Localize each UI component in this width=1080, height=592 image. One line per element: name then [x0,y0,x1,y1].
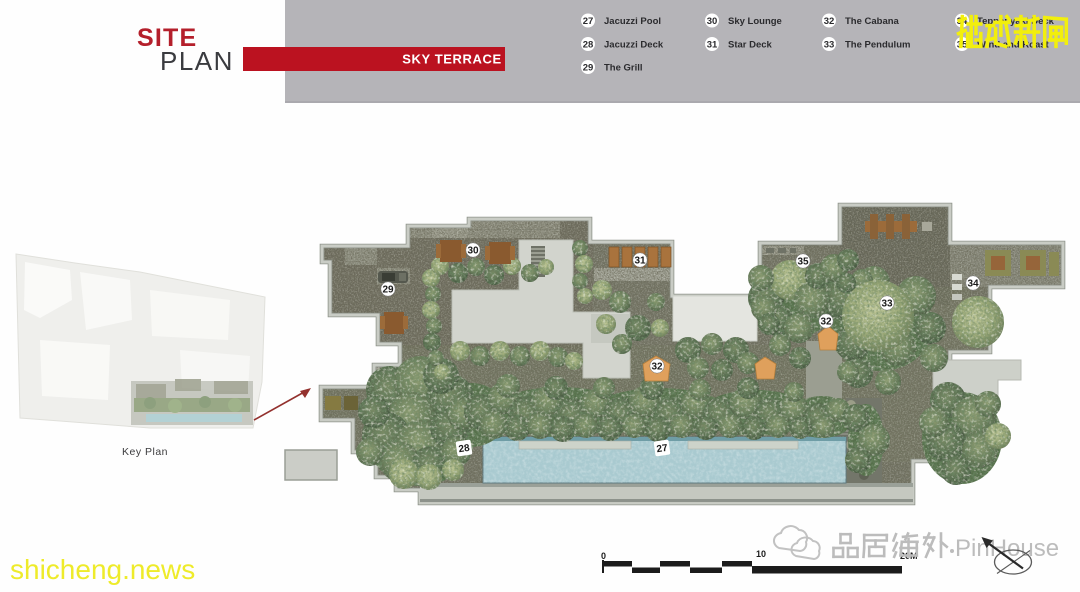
svg-text:The Pendulum: The Pendulum [845,40,910,51]
svg-text:29: 29 [583,63,594,74]
svg-text:30: 30 [707,16,718,27]
svg-text:The Cabana: The Cabana [845,16,900,27]
svg-text:Jacuzzi Deck: Jacuzzi Deck [604,40,664,51]
svg-text:31: 31 [707,40,718,51]
svg-text:29: 29 [382,285,394,296]
svg-text:PLAN: PLAN [160,46,234,76]
svg-text:33: 33 [824,40,835,51]
svg-text:10: 10 [756,549,766,559]
svg-text:28: 28 [458,443,471,456]
svg-text:35: 35 [797,257,809,268]
svg-text:The Grill: The Grill [604,63,643,74]
svg-text:27: 27 [656,443,669,456]
svg-text:31: 31 [634,256,646,267]
svg-text:Jacuzzi Pool: Jacuzzi Pool [604,16,661,27]
svg-text:Sky Lounge: Sky Lounge [728,16,782,27]
svg-text:32: 32 [824,16,835,27]
svg-text:Key Plan: Key Plan [122,446,168,458]
svg-text:30: 30 [467,246,479,257]
svg-text:32: 32 [820,317,832,328]
svg-text:0: 0 [601,551,606,561]
svg-text:34: 34 [967,279,979,290]
svg-text:28: 28 [583,40,594,51]
svg-text:27: 27 [583,16,594,27]
svg-text:shicheng.news: shicheng.news [10,554,195,585]
svg-text:33: 33 [881,299,893,310]
svg-text:Star Deck: Star Deck [728,40,773,51]
svg-text:32: 32 [651,362,663,373]
svg-text:SKY TERRACE: SKY TERRACE [402,52,502,67]
